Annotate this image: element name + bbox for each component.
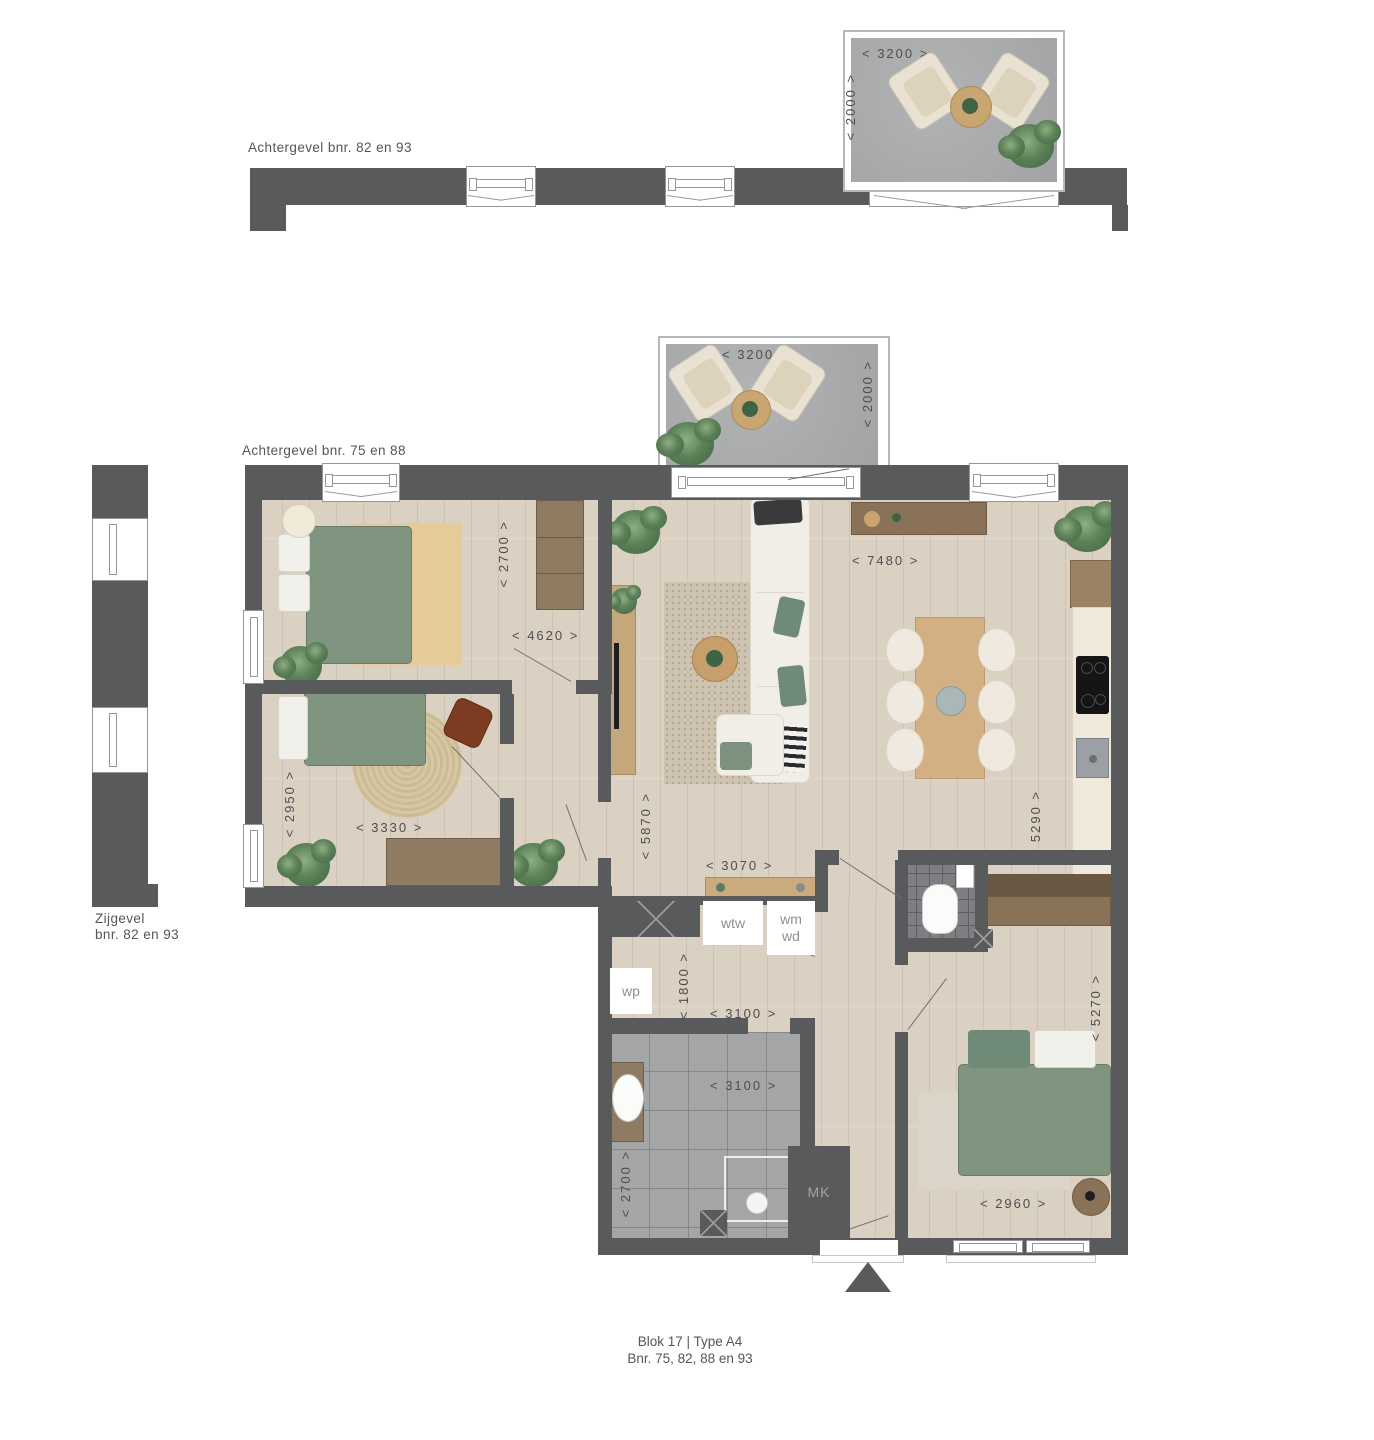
window: [969, 463, 1059, 502]
dimension: < 5270 >: [1088, 974, 1103, 1041]
pillow: [1034, 1030, 1096, 1068]
shaft: [612, 901, 700, 937]
wall: [500, 694, 514, 744]
dimension: < 2000 >: [860, 360, 875, 427]
wall: [576, 680, 612, 694]
window-sill: [946, 1255, 1096, 1263]
window: [1026, 1240, 1090, 1253]
side-table: [731, 390, 771, 430]
side-table: [950, 86, 992, 128]
dining-chair: [978, 680, 1016, 724]
dimension: < 2700 >: [618, 1150, 633, 1217]
plant: [612, 510, 660, 554]
mid-elevation-label: Achtergevel bnr. 75 en 88: [242, 443, 406, 458]
dining-chair: [886, 728, 924, 772]
wardrobe: [975, 874, 1111, 896]
wall: [815, 850, 828, 912]
wall: [898, 850, 1113, 865]
coffee-table: [692, 636, 738, 682]
floor-plan: Achtergevel bnr. 82 en 93 < 3200 > < 200…: [0, 0, 1374, 1440]
side-elevation-wall: [92, 773, 148, 907]
caption-line1: Blok 17 | Type A4: [540, 1333, 840, 1350]
window: [243, 610, 264, 684]
pillow: [278, 534, 310, 572]
double-bed: [958, 1064, 1111, 1176]
pillow: [753, 498, 803, 525]
dimension: < 2960 >: [980, 1196, 1047, 1211]
side-elevation-label2: bnr. 82 en 93: [95, 927, 179, 942]
wm-label: wm: [780, 911, 802, 928]
window: [466, 166, 536, 207]
console-table: [705, 877, 817, 897]
throw-blanket: [720, 742, 752, 770]
centerpiece: [936, 686, 966, 716]
pillow: [278, 574, 310, 612]
heat-pump: wp: [610, 968, 652, 1014]
shower: [724, 1156, 792, 1222]
dimension: < 5290 >: [1028, 790, 1043, 857]
dining-chair: [886, 680, 924, 724]
dimension: < 3070 >: [706, 858, 773, 873]
dimension: < 7480 >: [852, 553, 919, 568]
side-elevation-wall: [92, 465, 148, 518]
plant: [1006, 124, 1054, 168]
wall: [895, 1032, 908, 1238]
entrance-arrow-icon: [845, 1262, 891, 1292]
washer-dryer: wm wd: [767, 901, 815, 955]
wtw-unit: wtw: [703, 901, 763, 945]
dimension: < 2950 >: [282, 770, 297, 837]
window: [322, 463, 400, 502]
side-elevation-wall-step: [148, 884, 158, 907]
wall: [908, 938, 975, 952]
wall: [800, 1032, 815, 1148]
single-bed: [304, 690, 426, 766]
wardrobe: [975, 896, 1111, 926]
wall: [598, 858, 611, 886]
caption-line2: Bnr. 75, 82, 88 en 93: [540, 1350, 840, 1367]
entrance-door-opening: [820, 1240, 898, 1255]
wall: [255, 680, 512, 694]
wardrobe: [536, 500, 584, 610]
side-elevation-wall: [92, 581, 148, 707]
sideboard: [851, 502, 987, 535]
washbasin: [612, 1074, 644, 1122]
window: [953, 1240, 1023, 1253]
top-elevation-wall-step-right: [1112, 205, 1128, 231]
wd-label: wd: [782, 928, 800, 945]
plant: [664, 422, 714, 466]
wall: [1111, 465, 1128, 1255]
pillow: [777, 665, 807, 707]
toilet: [922, 884, 958, 934]
wall: [598, 465, 612, 694]
dresser: [386, 838, 504, 886]
window: [665, 166, 735, 207]
caption: Blok 17 | Type A4 Bnr. 75, 82, 88 en 93: [540, 1333, 840, 1367]
tv: [614, 643, 619, 729]
side-table: [1072, 1178, 1110, 1216]
wall: [598, 898, 612, 1255]
plant: [284, 843, 330, 887]
window: [92, 518, 148, 581]
dimension: < 2000 >: [843, 73, 858, 140]
dimension: < 5870 >: [638, 792, 653, 859]
plant: [611, 588, 637, 614]
wall: [245, 886, 612, 907]
dining-chair: [886, 628, 924, 672]
top-elevation-label: Achtergevel bnr. 82 en 93: [248, 140, 412, 155]
window: [243, 824, 264, 888]
kitchen-cabinet: [1070, 560, 1112, 608]
wall: [895, 860, 908, 965]
dimension: < 3100 >: [710, 1006, 777, 1021]
kitchen-sink: [1076, 738, 1109, 778]
meter-cupboard: MK: [788, 1146, 850, 1238]
pillow: [278, 696, 308, 760]
dining-chair: [978, 728, 1016, 772]
cistern: [956, 862, 974, 888]
shaft: [700, 1210, 727, 1236]
dimension: < 4620 >: [512, 628, 579, 643]
side-elevation-label: Zijgevel: [95, 911, 145, 926]
wall: [598, 694, 611, 802]
pillow: [968, 1030, 1030, 1068]
dimension: < 2700 >: [496, 520, 511, 587]
top-elevation-wall-step-left: [250, 205, 286, 231]
dimension: < 1800 >: [676, 952, 691, 1019]
shaft: [974, 929, 993, 948]
cooktop: [1076, 656, 1109, 714]
plant: [510, 843, 558, 887]
dimension: < 3100 >: [710, 1078, 777, 1093]
plant: [1062, 506, 1112, 552]
wall: [500, 798, 514, 886]
bedside-table: [282, 504, 316, 538]
window: [92, 707, 148, 773]
dining-chair: [978, 628, 1016, 672]
dimension: < 3330 >: [356, 820, 423, 835]
